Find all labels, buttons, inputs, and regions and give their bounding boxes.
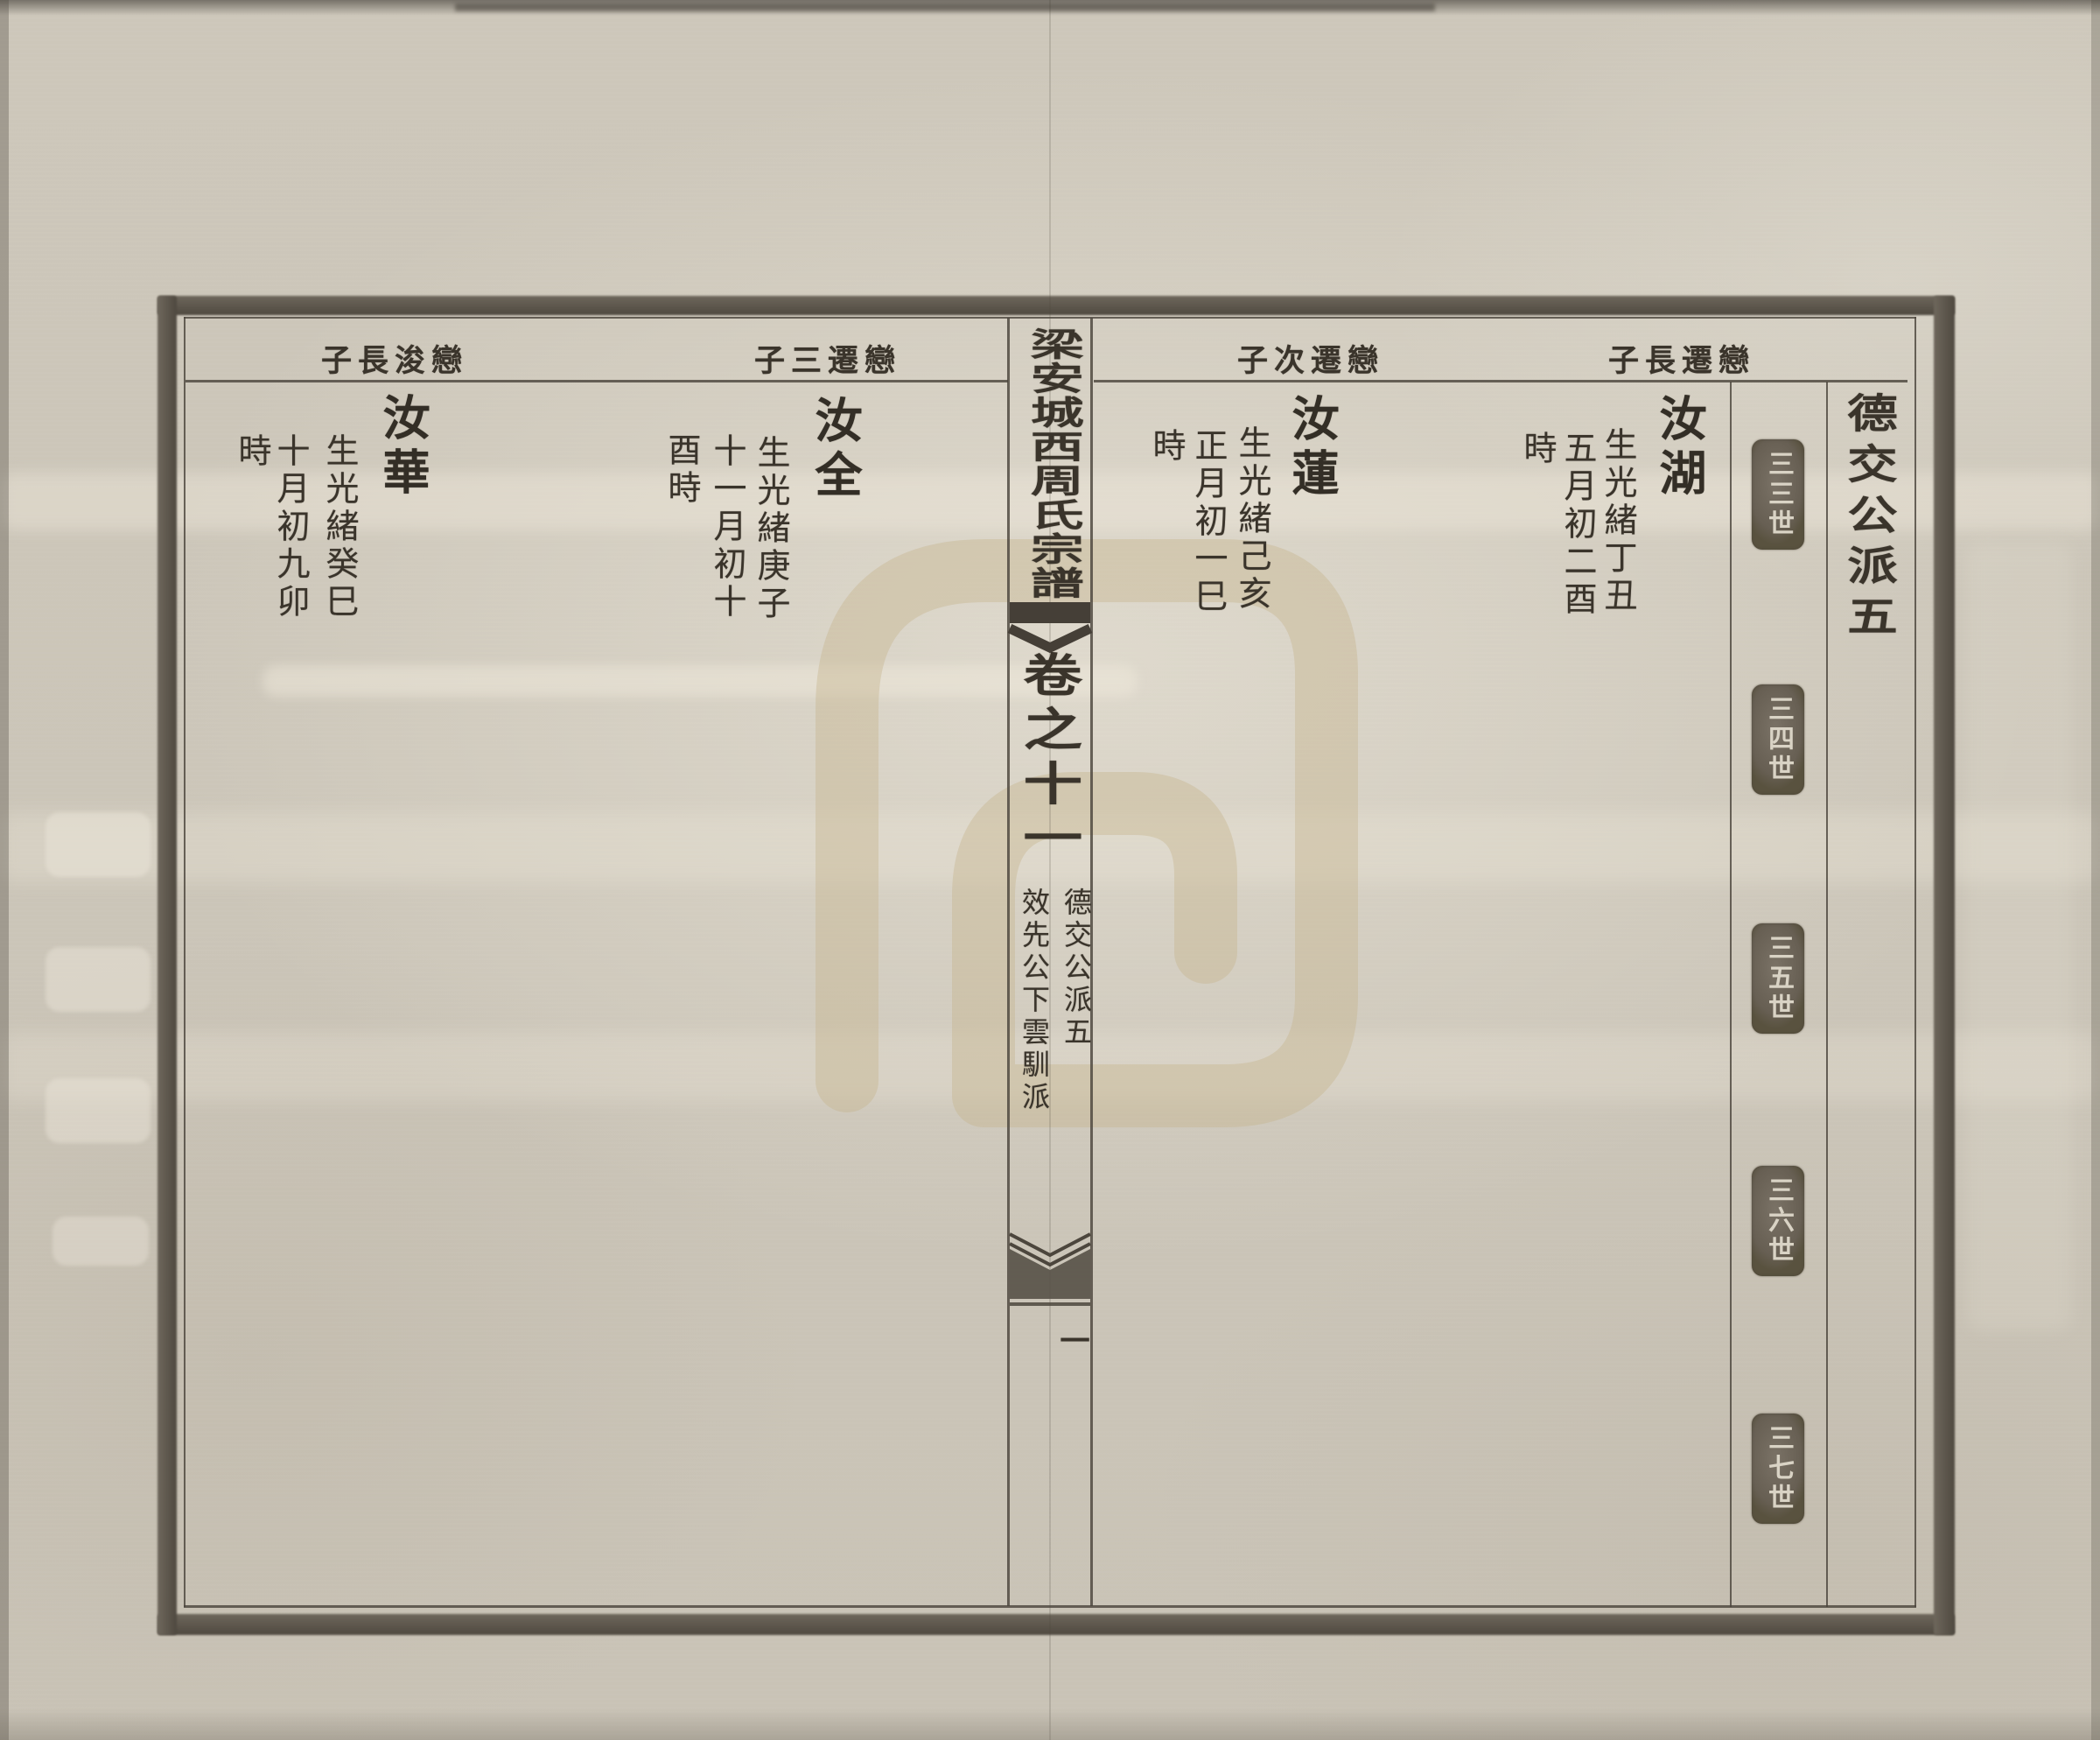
- generation-stamp: 三七世: [1752, 1414, 1804, 1524]
- photo-edge-left: [0, 0, 9, 1740]
- birth-date-column: 生光緒庚子: [747, 435, 787, 623]
- margin-branch-title: 德交公派五: [1833, 392, 1894, 646]
- generation-stamp-label: 三四世: [1765, 695, 1791, 784]
- birth-date-column: 十月初九卯: [267, 433, 307, 621]
- spine-branch-right-label: 德交公派五: [1055, 888, 1090, 1049]
- generation-stamp-label: 三六世: [1765, 1176, 1791, 1266]
- entry-name: 汝湖: [1648, 394, 1703, 502]
- spine-branch-left-label: 效先公下雲馴派: [1013, 888, 1048, 1114]
- generation-stamp: 三四世: [1752, 684, 1804, 795]
- birth-date-column: 生光緒癸巳: [316, 433, 356, 621]
- entry-name: 汝華: [372, 393, 426, 502]
- photo-edge-right: [2091, 0, 2100, 1740]
- generation-stamp: 三六世: [1752, 1166, 1804, 1276]
- birth-date-column: 五月初二酉: [1554, 431, 1594, 619]
- generation-stamp: 三三世: [1752, 439, 1804, 550]
- birth-date-column: 正月初一巳: [1185, 428, 1225, 616]
- birth-date-column: 時: [228, 433, 269, 471]
- generation-stamp: 三五世: [1752, 923, 1804, 1034]
- birth-date-column: 時: [1143, 428, 1183, 466]
- entry-header: 子長浚戀: [321, 336, 468, 381]
- generation-stamp-label: 三五世: [1765, 934, 1791, 1023]
- birth-date-column: 生光緒己亥: [1228, 425, 1269, 614]
- entry-name: 汝蓮: [1281, 394, 1335, 502]
- birth-date-column: 生光緒丁丑: [1594, 427, 1634, 615]
- birth-date-column: 十一月初十: [703, 433, 744, 621]
- leaf-number: 一: [1055, 1325, 1087, 1355]
- spine-volume-label: 卷之十一: [1024, 651, 1076, 868]
- entry-header: 子三遷戀: [754, 336, 901, 381]
- birth-date-column: 時: [1514, 431, 1554, 468]
- birth-date-column: 酉時: [658, 432, 698, 508]
- entry-header: 子長遷戀: [1608, 336, 1755, 381]
- entry-header: 子次遷戀: [1237, 336, 1384, 381]
- entry-name: 汝全: [804, 396, 858, 504]
- generation-stamp-label: 三三世: [1765, 450, 1791, 539]
- photo-edge-streak: [455, 4, 1435, 11]
- generation-stamp-label: 三七世: [1765, 1424, 1791, 1513]
- photo-edge-bottom: [0, 1708, 2100, 1740]
- spine-book-title: 梁安城西周氏宗譜: [1021, 327, 1079, 600]
- genealogy-scan-page: 梁安城西周氏宗譜 卷之十一 德交公派五 效先公下雲馴派 一 德交公派五 三三世 …: [0, 0, 2100, 1740]
